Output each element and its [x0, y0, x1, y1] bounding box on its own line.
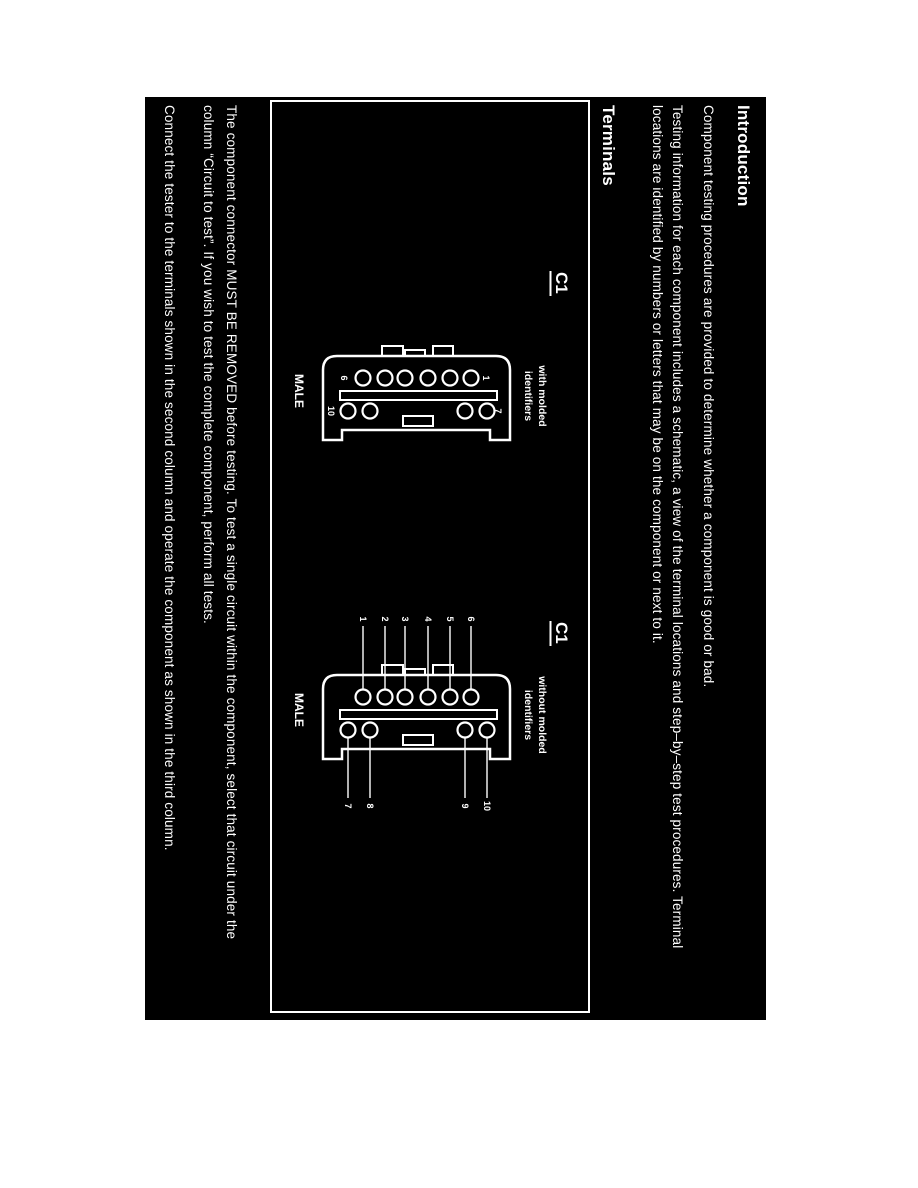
pin-number-label: 3: [400, 616, 410, 621]
testing-info-line-1: Testing information for each component i…: [670, 105, 685, 948]
connector-diagrams-svg: C1with moldedidentifiers16710MALEC1witho…: [276, 102, 588, 1007]
intro-paragraph-line: Component testing procedures are provide…: [701, 105, 716, 687]
pin-number-label: 6: [466, 616, 476, 621]
connector-id-label: C1: [552, 622, 571, 644]
variant-label-line2: identifiers: [522, 371, 534, 421]
pin-number-label: 5: [445, 616, 455, 621]
pin-number-label: 7: [493, 408, 503, 413]
connector-body-outline: [323, 675, 510, 759]
black-content-panel: Introduction Component testing procedure…: [145, 97, 766, 1020]
connector-diagram-2: C1without moldedidentifiers65432110987MA…: [292, 616, 571, 811]
rotated-page-content: Introduction Component testing procedure…: [0, 0, 918, 1188]
gender-label: MALE: [292, 693, 306, 727]
connector-id-label: C1: [552, 272, 571, 294]
terminals-heading: Terminals: [598, 105, 618, 186]
pin-number-label: 10: [482, 801, 492, 811]
variant-label-line1: with molded: [536, 364, 548, 426]
connector-body-outline: [323, 356, 510, 440]
variant-label-line1: without molded: [536, 675, 548, 754]
pin-number-label: 10: [326, 406, 336, 416]
testing-info-line-2: locations are identified by numbers or l…: [650, 105, 665, 644]
pin-number-label: 1: [481, 375, 491, 380]
pin-number-label: 6: [339, 375, 349, 380]
tester-connection-line: Connect the tester to the terminals show…: [162, 105, 177, 851]
pin-number-label: 7: [343, 803, 353, 808]
pin-number-label: 9: [460, 803, 470, 808]
variant-label-line2: identifiers: [522, 690, 534, 740]
scanned-manual-page: Introduction Component testing procedure…: [0, 0, 918, 1188]
pin-number-label: 8: [365, 803, 375, 808]
gender-label: MALE: [292, 374, 306, 408]
pin-number-label: 2: [380, 616, 390, 621]
introduction-heading: Introduction: [733, 105, 753, 207]
connector-removal-line-1: The component connector MUST BE REMOVED …: [224, 105, 239, 939]
terminal-schematic-box: C1with moldedidentifiers16710MALEC1witho…: [270, 100, 590, 1013]
connector-diagram-1: C1with moldedidentifiers16710MALE: [292, 271, 571, 440]
connector-removal-line-2: column “Circuit to test”. If you wish to…: [201, 105, 216, 624]
pin-number-label: 1: [358, 616, 368, 621]
pin-number-label: 4: [423, 616, 433, 621]
